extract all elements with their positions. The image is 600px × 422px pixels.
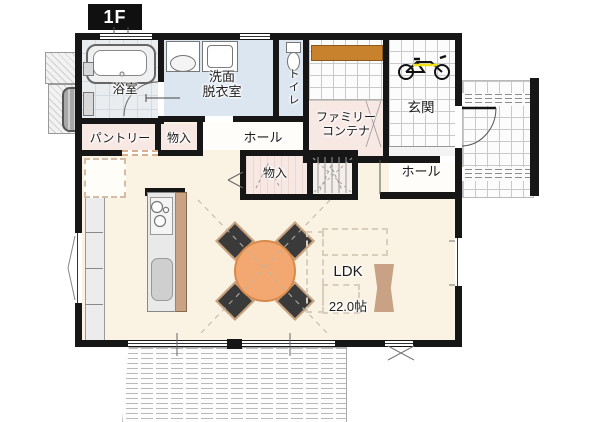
floor-badge: 1F	[88, 4, 142, 30]
pantry-opening	[122, 150, 158, 156]
label-pantry: パントリー	[84, 132, 156, 146]
cupboard-divider	[85, 304, 103, 305]
porch-side-wall	[530, 78, 539, 196]
wall-segment	[240, 150, 246, 200]
wall-segment	[273, 33, 279, 122]
window	[75, 233, 82, 303]
porch-step-lower	[462, 167, 532, 181]
wall-segment	[309, 156, 440, 163]
room-entrance	[389, 39, 455, 146]
window	[100, 34, 152, 39]
label-storage-center: 物入	[256, 167, 294, 181]
door-opening	[158, 82, 164, 116]
ldk-name: LDK	[333, 263, 362, 280]
label-hall-entry: ホール	[395, 165, 447, 180]
dining-table-icon	[234, 240, 296, 302]
wall-segment	[75, 118, 164, 124]
wall-segment	[75, 150, 122, 156]
label-family-container: ファミリー コンテナ	[306, 111, 386, 139]
sliding-door	[242, 341, 335, 346]
wall-segment	[383, 33, 389, 163]
window	[455, 238, 462, 286]
ldk-area: 22.0帖	[329, 299, 367, 314]
bathtub-inner	[93, 50, 147, 76]
sliding-door	[128, 341, 227, 346]
cupboard-divider	[85, 268, 103, 269]
washer-drum	[207, 45, 233, 68]
label-toilet: トイレ	[283, 55, 299, 119]
porch-step-upper	[462, 93, 532, 106]
label-storage-upper: 物入	[160, 132, 198, 146]
window-pier	[227, 339, 242, 349]
stove-burners-icon	[150, 197, 173, 235]
cupboard-divider	[85, 232, 103, 233]
kitchen-sink-icon	[151, 258, 173, 301]
bath-counter	[83, 62, 94, 76]
window	[240, 34, 270, 39]
floorplan-canvas: 1F	[0, 0, 600, 422]
wall-segment	[303, 33, 309, 163]
shoe-shelf	[311, 45, 383, 61]
wall-segment	[240, 194, 358, 200]
door-opening	[440, 156, 455, 163]
bath-counter	[83, 92, 94, 116]
wood-deck	[122, 347, 347, 422]
label-washroom: 洗面 脱衣室	[186, 70, 258, 100]
label-bathroom: 浴室	[95, 82, 155, 96]
casement-window	[385, 341, 413, 346]
wall-segment	[380, 192, 455, 199]
label-ldk: LDK 22.0帖	[316, 246, 380, 315]
entry-door-opening	[455, 106, 462, 148]
door-opening	[205, 116, 233, 122]
wall-segment	[455, 33, 462, 347]
cupboard	[85, 196, 105, 343]
refrigerator-space	[84, 158, 126, 198]
label-entrance: 玄関	[398, 100, 444, 116]
label-hall-upper: ホール	[237, 131, 289, 146]
